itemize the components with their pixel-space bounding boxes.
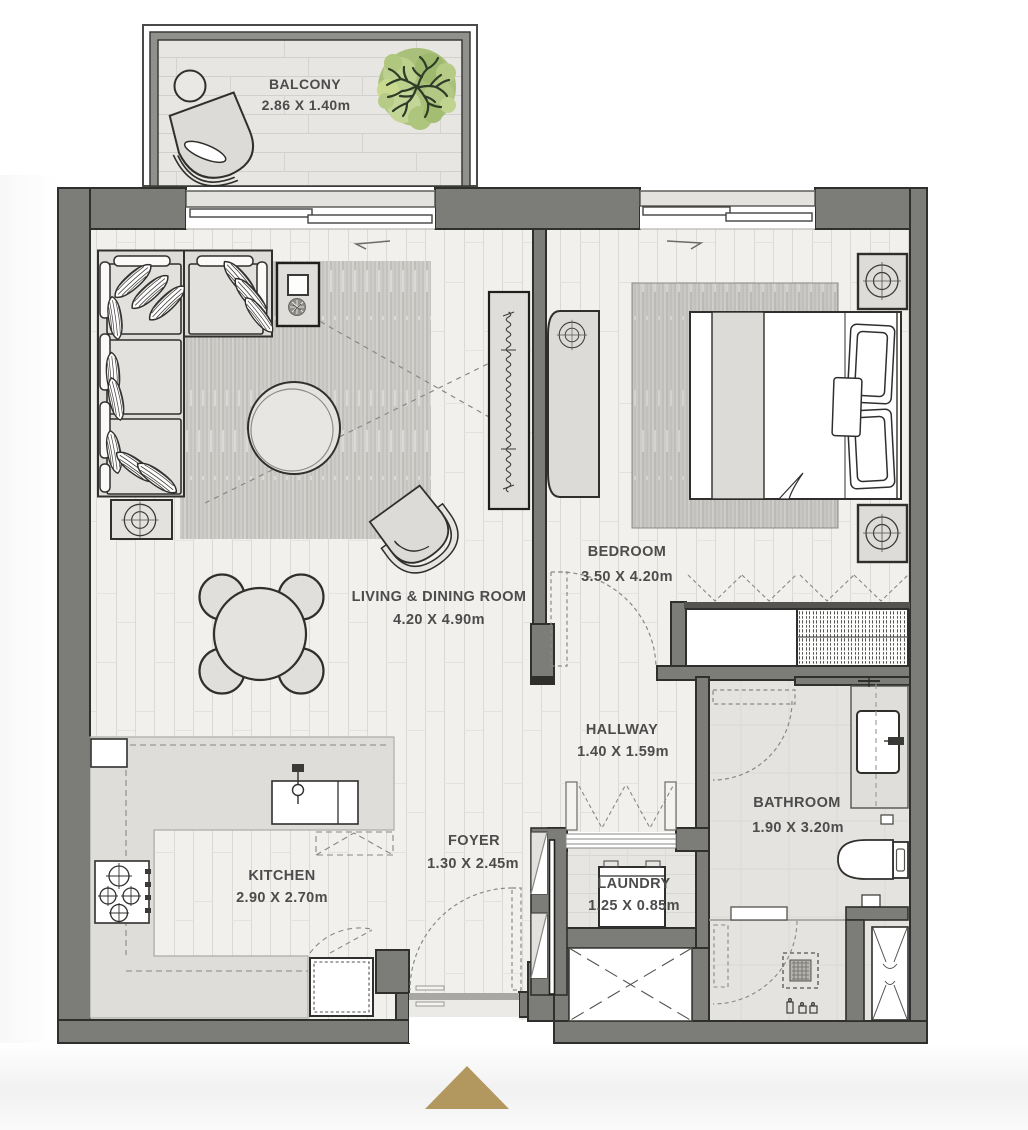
svg-text:KITCHEN: KITCHEN	[248, 868, 315, 884]
svg-text:4.20 X 4.90m: 4.20 X 4.90m	[393, 612, 485, 628]
svg-text:BEDROOM: BEDROOM	[588, 544, 667, 560]
svg-text:1.30 X 2.45m: 1.30 X 2.45m	[427, 856, 519, 872]
svg-text:FOYER: FOYER	[448, 833, 500, 849]
svg-text:LIVING & DINING ROOM: LIVING & DINING ROOM	[352, 589, 527, 605]
svg-text:1.40 X 1.59m: 1.40 X 1.59m	[577, 744, 669, 760]
svg-text:2.86 X 1.40m: 2.86 X 1.40m	[262, 97, 351, 113]
svg-text:BALCONY: BALCONY	[269, 76, 341, 92]
svg-text:BATHROOM: BATHROOM	[753, 795, 841, 811]
svg-text:3.50 X 4.20m: 3.50 X 4.20m	[581, 569, 673, 585]
svg-text:2.90 X 2.70m: 2.90 X 2.70m	[236, 890, 328, 906]
svg-text:LAUNDRY: LAUNDRY	[597, 876, 670, 892]
svg-text:HALLWAY: HALLWAY	[586, 722, 658, 738]
svg-text:1.90 X 3.20m: 1.90 X 3.20m	[752, 820, 844, 836]
svg-text:1.25 X 0.85m: 1.25 X 0.85m	[588, 898, 680, 914]
